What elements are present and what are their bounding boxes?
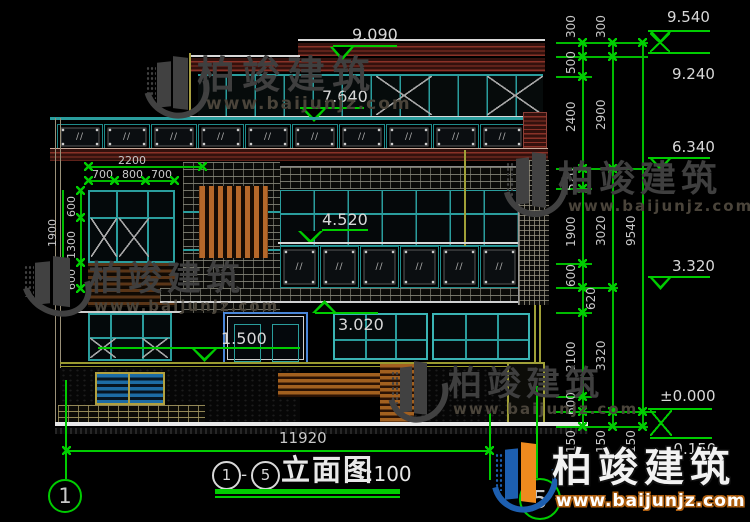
elevation-label-6340: 6.340 — [672, 140, 715, 155]
dim-tick-icon — [578, 72, 587, 81]
elevation-label-3320: 3.320 — [672, 259, 715, 274]
glass-hatch-icon: ∕∕ — [405, 133, 413, 142]
glass-hatch-icon: ∕∕ — [498, 133, 506, 142]
dim-tick-icon — [608, 422, 617, 431]
window-opening-x-icon — [119, 218, 149, 257]
dim-tick-icon — [62, 446, 71, 455]
elevation-line-9240 — [648, 52, 710, 54]
brick-band-upper — [280, 166, 518, 189]
elevation-label-4520: 4.520 — [322, 212, 368, 228]
grid-bubble-1-label: 1 — [58, 484, 71, 508]
dim-tick-icon — [578, 422, 587, 431]
dim-label: 1900 — [46, 213, 60, 253]
title-underline-thick — [215, 489, 400, 494]
window-mullion — [497, 315, 499, 358]
window-band-transom — [280, 213, 518, 215]
dim-tick-icon — [638, 407, 647, 416]
glass-panel: ∕∕ — [280, 246, 319, 288]
glass-hatch-icon: ∕∕ — [335, 263, 343, 272]
glass-panel: ∕∕ — [104, 124, 150, 150]
dim-tick-icon — [578, 38, 587, 47]
penthouse-window-x-icon — [487, 76, 543, 115]
dim-label: 1900 — [564, 212, 578, 252]
baijun-logo-color-icon — [492, 443, 548, 515]
dim-tick-icon — [578, 52, 587, 61]
elevation-label-1500: 1.500 — [221, 331, 267, 347]
elevation-label-9240: 9.240 — [672, 67, 715, 82]
overall-width-label: 11920 — [279, 431, 327, 446]
baijun-logo-icon — [143, 57, 200, 121]
glass-hatch-icon: ∕∕ — [217, 133, 225, 142]
dim-label: 600 — [564, 262, 578, 290]
dim-label: 700 — [151, 169, 172, 180]
baijun-logo-icon — [503, 153, 558, 219]
dim-label: 500 — [564, 48, 578, 78]
dim-tick-icon — [608, 38, 617, 47]
glass-hatch-icon: ∕∕ — [295, 263, 303, 272]
glass-panel: ∕∕ — [480, 124, 525, 150]
elevation-line-9540 — [648, 30, 710, 32]
dim-label: 600 — [65, 194, 79, 220]
dim-label: 2900 — [594, 92, 608, 138]
dim-tick-icon — [638, 38, 647, 47]
watermark-company: 柏竣建筑 — [558, 162, 722, 198]
dim-chain-line-2 — [612, 42, 614, 427]
ground-line — [55, 422, 588, 426]
overall-dim-line — [66, 450, 490, 452]
dim-tick-icon — [198, 162, 207, 171]
glass-panel: ∕∕ — [198, 124, 244, 150]
elevation-label-9540: 9.540 — [667, 10, 710, 25]
window-transom — [335, 339, 426, 341]
glass-panel: ∕∕ — [320, 246, 359, 288]
railing-top-rail — [50, 117, 530, 120]
elevation-line-3320 — [648, 276, 710, 278]
glass-hatch-icon: ∕∕ — [76, 133, 84, 142]
dim-tick-icon — [638, 422, 647, 431]
watermark-company: 柏竣建筑 — [197, 56, 377, 94]
basement-vent-louver — [95, 372, 165, 405]
window-transom — [434, 339, 528, 341]
window-mullion — [395, 315, 397, 358]
glass-panel: ∕∕ — [360, 246, 399, 288]
elevation-line-neg150 — [650, 437, 712, 439]
elevation-triangle-1500-icon — [192, 349, 217, 362]
dim-label: 2400 — [564, 95, 578, 139]
dim-label: 800 — [122, 169, 143, 180]
glass-panel: ∕∕ — [151, 124, 197, 150]
glass-hatch-icon: ∕∕ — [311, 133, 319, 142]
glass-hatch-icon: ∕∕ — [375, 263, 383, 272]
wood-deck — [278, 373, 382, 397]
brick-base-strip — [58, 405, 205, 423]
title-underline-thin — [215, 496, 400, 498]
dim-label: 2200 — [118, 155, 146, 166]
glass-panel: ∕∕ — [400, 246, 439, 288]
drawing-scale: 1:100 — [354, 464, 412, 484]
watermark-website: www.baijunjz.com — [568, 199, 750, 214]
dim-tick-icon — [141, 176, 150, 185]
second-floor-right-window-2 — [432, 313, 530, 360]
title-grid-start-label: 1 — [222, 468, 232, 483]
dim-tick-icon — [578, 259, 587, 268]
elevation-bowtie-zero-icon — [650, 410, 672, 436]
wood-louver-screen — [199, 186, 268, 258]
dim-connector — [556, 42, 648, 44]
roof-parapet-top-line — [298, 39, 545, 41]
dim-label: 620 — [584, 284, 598, 314]
glass-hatch-icon: ∕∕ — [123, 133, 131, 142]
title-grid-end-label: 5 — [261, 468, 271, 483]
glass-panel: ∕∕ — [339, 124, 385, 150]
glass-panel: ∕∕ — [480, 246, 519, 288]
watermark-company: 柏竣建筑 — [448, 367, 604, 401]
glass-hatch-icon: ∕∕ — [170, 133, 178, 142]
glass-panel: ∕∕ — [386, 124, 432, 150]
glass-hatch-icon: ∕∕ — [358, 133, 366, 142]
balustrade-top-line — [278, 242, 520, 244]
glass-panel: ∕∕ — [245, 124, 291, 150]
elevation-drawing-canvas: 9.090 7.640 ∕∕ ∕∕ ∕∕ ∕∕ ∕∕ ∕∕ ∕∕ ∕∕ ∕∕ ∕… — [0, 0, 750, 522]
door-leaf — [272, 324, 299, 362]
watermark-company-color: 柏竣建筑 — [552, 448, 736, 488]
glass-hatch-icon: ∕∕ — [495, 263, 503, 272]
title-grid-circle-start: 1 — [212, 461, 241, 490]
glass-panel: ∕∕ — [433, 124, 479, 150]
glass-panel: ∕∕ — [57, 124, 103, 150]
watermark-website-color: www.baijunjz.com — [556, 493, 746, 510]
grid-line-1 — [65, 380, 67, 479]
dim-tick-icon — [110, 176, 119, 185]
glass-panel: ∕∕ — [440, 246, 479, 288]
elevation-line-3020 — [315, 312, 378, 314]
title-separator: - — [241, 467, 247, 484]
grid-bubble-1: 1 — [48, 479, 82, 513]
elevation-label-zero: ±0.000 — [660, 389, 716, 404]
dim-label: 300 — [594, 12, 608, 42]
elevation-label-3020: 3.020 — [338, 317, 384, 333]
watermark-website: www.baijunjz.com — [206, 96, 412, 113]
elevation-triangle-3320-icon — [650, 278, 671, 290]
dim-tick-icon — [608, 52, 617, 61]
watermark-website: www.baijunjz.com — [453, 402, 638, 417]
dim-tick-icon — [170, 176, 179, 185]
elevation-bowtie-9240-icon — [650, 33, 670, 52]
glass-panel: ∕∕ — [292, 124, 338, 150]
baijun-logo-icon — [388, 362, 438, 426]
title-grid-circle-end: 5 — [251, 461, 280, 490]
elevation-label-9090: 9.090 — [352, 27, 398, 43]
watermark-company: 柏竣建筑 — [89, 262, 245, 296]
elevation-line-9090 — [333, 45, 397, 47]
dim-chain-line-3 — [642, 42, 644, 427]
dim-tick-icon — [84, 176, 93, 185]
window-mullion — [465, 315, 467, 358]
elevation-line-4520 — [322, 229, 368, 231]
glass-hatch-icon: ∕∕ — [455, 263, 463, 272]
watermark-website: www.baijunjz.com — [94, 299, 279, 314]
dim-line — [88, 180, 175, 182]
glass-hatch-icon: ∕∕ — [264, 133, 272, 142]
elevation-line-1500 — [98, 347, 300, 349]
glass-hatch-icon: ∕∕ — [452, 133, 460, 142]
window-opening-x-icon — [91, 218, 117, 257]
glass-hatch-icon: ∕∕ — [415, 263, 423, 272]
vent-divider — [128, 374, 130, 403]
baijun-logo-icon — [20, 257, 84, 317]
dim-tick-icon — [608, 283, 617, 292]
dim-label: 300 — [564, 12, 578, 42]
